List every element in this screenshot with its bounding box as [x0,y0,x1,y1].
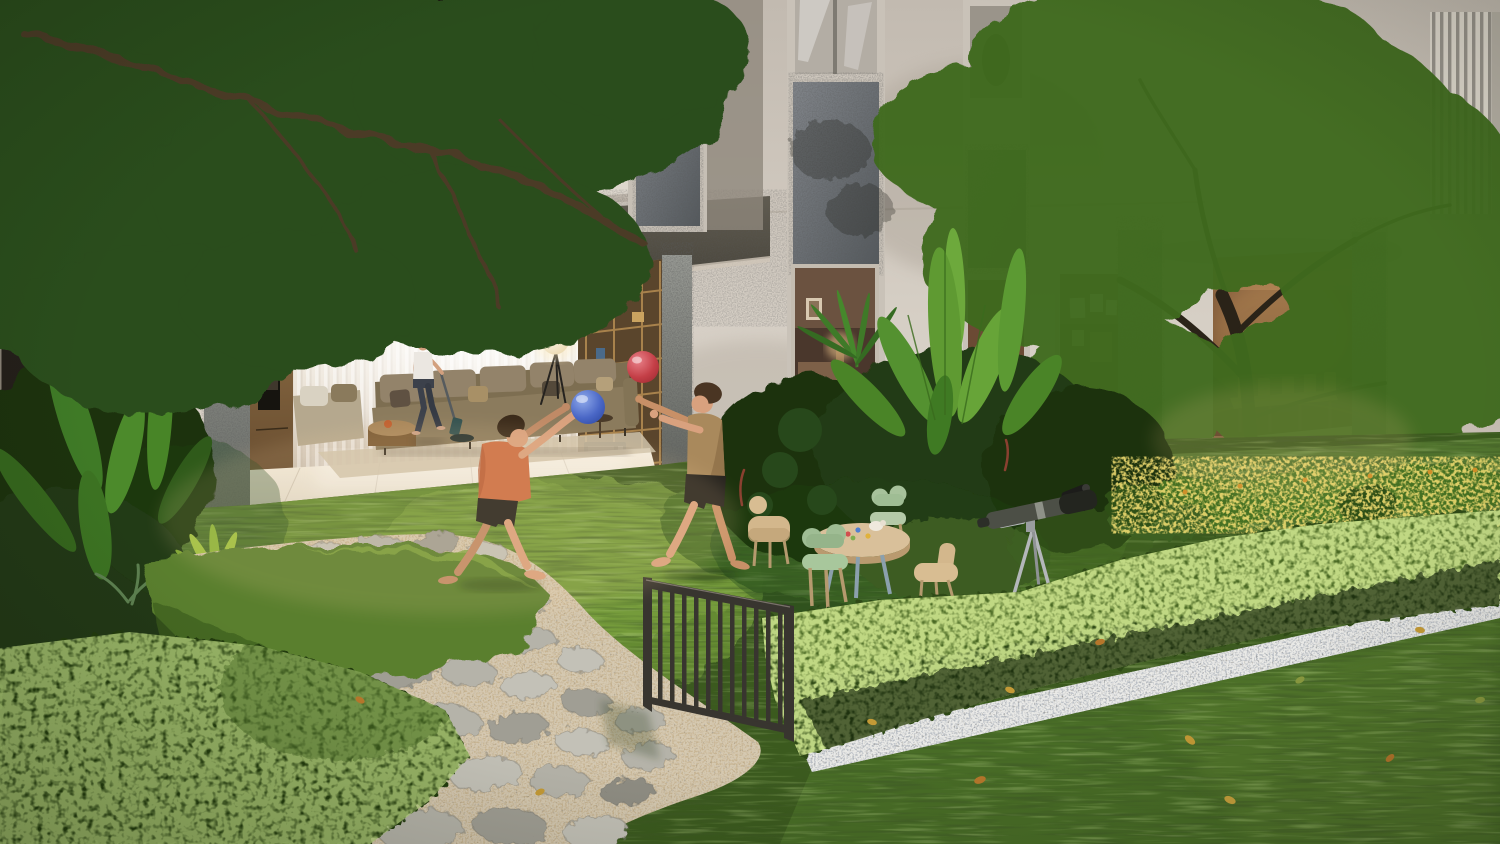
courtyard-render: Photorealistic dusk rendering of a moder… [0,0,1500,844]
scene-canvas: Photorealistic dusk rendering of a moder… [0,0,1500,844]
light-overlays [0,0,1500,844]
